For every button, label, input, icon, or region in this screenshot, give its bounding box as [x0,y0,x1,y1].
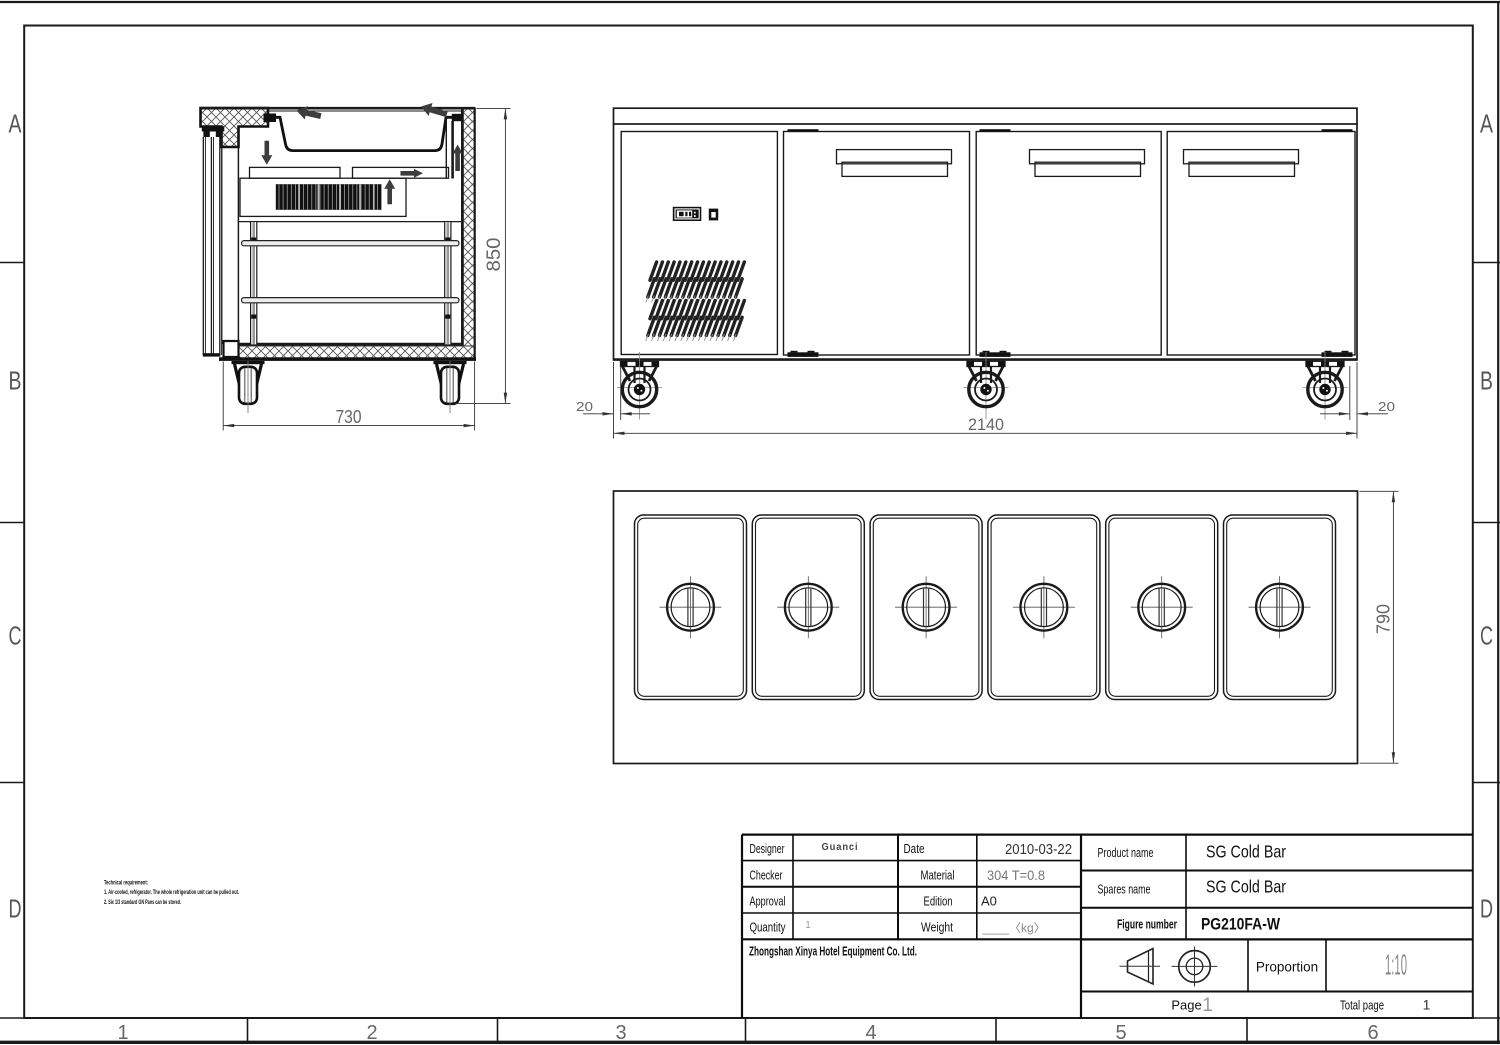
svg-text:6: 6 [1367,1022,1378,1044]
svg-text:SG Cold Bar: SG Cold Bar [1206,842,1286,862]
svg-text:A: A [9,109,22,139]
svg-text:2010-03-22: 2010-03-22 [1005,842,1072,858]
svg-text:Technical requirement:: Technical requirement: [104,880,148,887]
svg-text:Date: Date [904,841,925,856]
svg-text:1: 1 [1202,995,1213,1016]
svg-text:20: 20 [1378,400,1395,414]
svg-text:SG Cold Bar: SG Cold Bar [1206,877,1286,897]
svg-text:D: D [1480,894,1493,924]
svg-text:A: A [1480,109,1493,139]
svg-text:5: 5 [1115,1022,1126,1044]
svg-text:Designer: Designer [750,841,785,856]
svg-text:730: 730 [336,407,362,427]
svg-text:1: 1 [117,1022,128,1044]
svg-text:Approval: Approval [750,894,786,909]
svg-text:Edition: Edition [924,894,953,909]
svg-text:20: 20 [576,400,593,414]
svg-text:C: C [1480,621,1493,651]
svg-text:Total page: Total page [1340,998,1384,1013]
svg-text:PG210FA-W: PG210FA-W [1201,915,1281,934]
svg-text:A0: A0 [981,894,997,909]
svg-text:Figure number: Figure number [1117,917,1177,932]
svg-text:304 T=0.8: 304 T=0.8 [987,867,1045,883]
svg-text:B: B [1480,366,1493,396]
svg-text:2. Six 1/3 standard GN Pans ca: 2. Six 1/3 standard GN Pans can be store… [104,899,181,906]
svg-text:Material: Material [921,868,955,883]
svg-text:1. Air-cooled, refrigerator. T: 1. Air-cooled, refrigerator. The whole r… [104,889,239,896]
svg-text:Guanci: Guanci [822,841,859,853]
svg-text:2: 2 [366,1022,377,1044]
svg-text:Weight: Weight [921,920,953,935]
svg-text:Quantity: Quantity [750,920,786,935]
svg-text:1: 1 [1423,997,1431,1013]
svg-text:B: B [9,366,22,396]
svg-text:2140: 2140 [968,415,1004,434]
svg-text:790: 790 [1374,604,1394,634]
svg-text:Product name: Product name [1098,845,1154,860]
svg-text:____〈kg〉: ____〈kg〉 [981,921,1045,935]
svg-text:1:10: 1:10 [1385,950,1407,982]
svg-text:Zhongshan Xinya Hotel Equipmen: Zhongshan Xinya Hotel Equipment Co. Ltd. [749,944,917,959]
svg-text:3: 3 [615,1022,626,1044]
svg-text:Spares name: Spares name [1098,882,1151,897]
svg-text:Page: Page [1171,998,1201,1013]
svg-text:Proportion: Proportion [1256,960,1318,975]
svg-text:D: D [9,894,22,924]
svg-text:1: 1 [805,920,811,931]
svg-text:850: 850 [484,238,505,272]
svg-text:C: C [9,621,22,651]
svg-text:Checker: Checker [750,868,783,883]
svg-text:4: 4 [865,1022,876,1044]
